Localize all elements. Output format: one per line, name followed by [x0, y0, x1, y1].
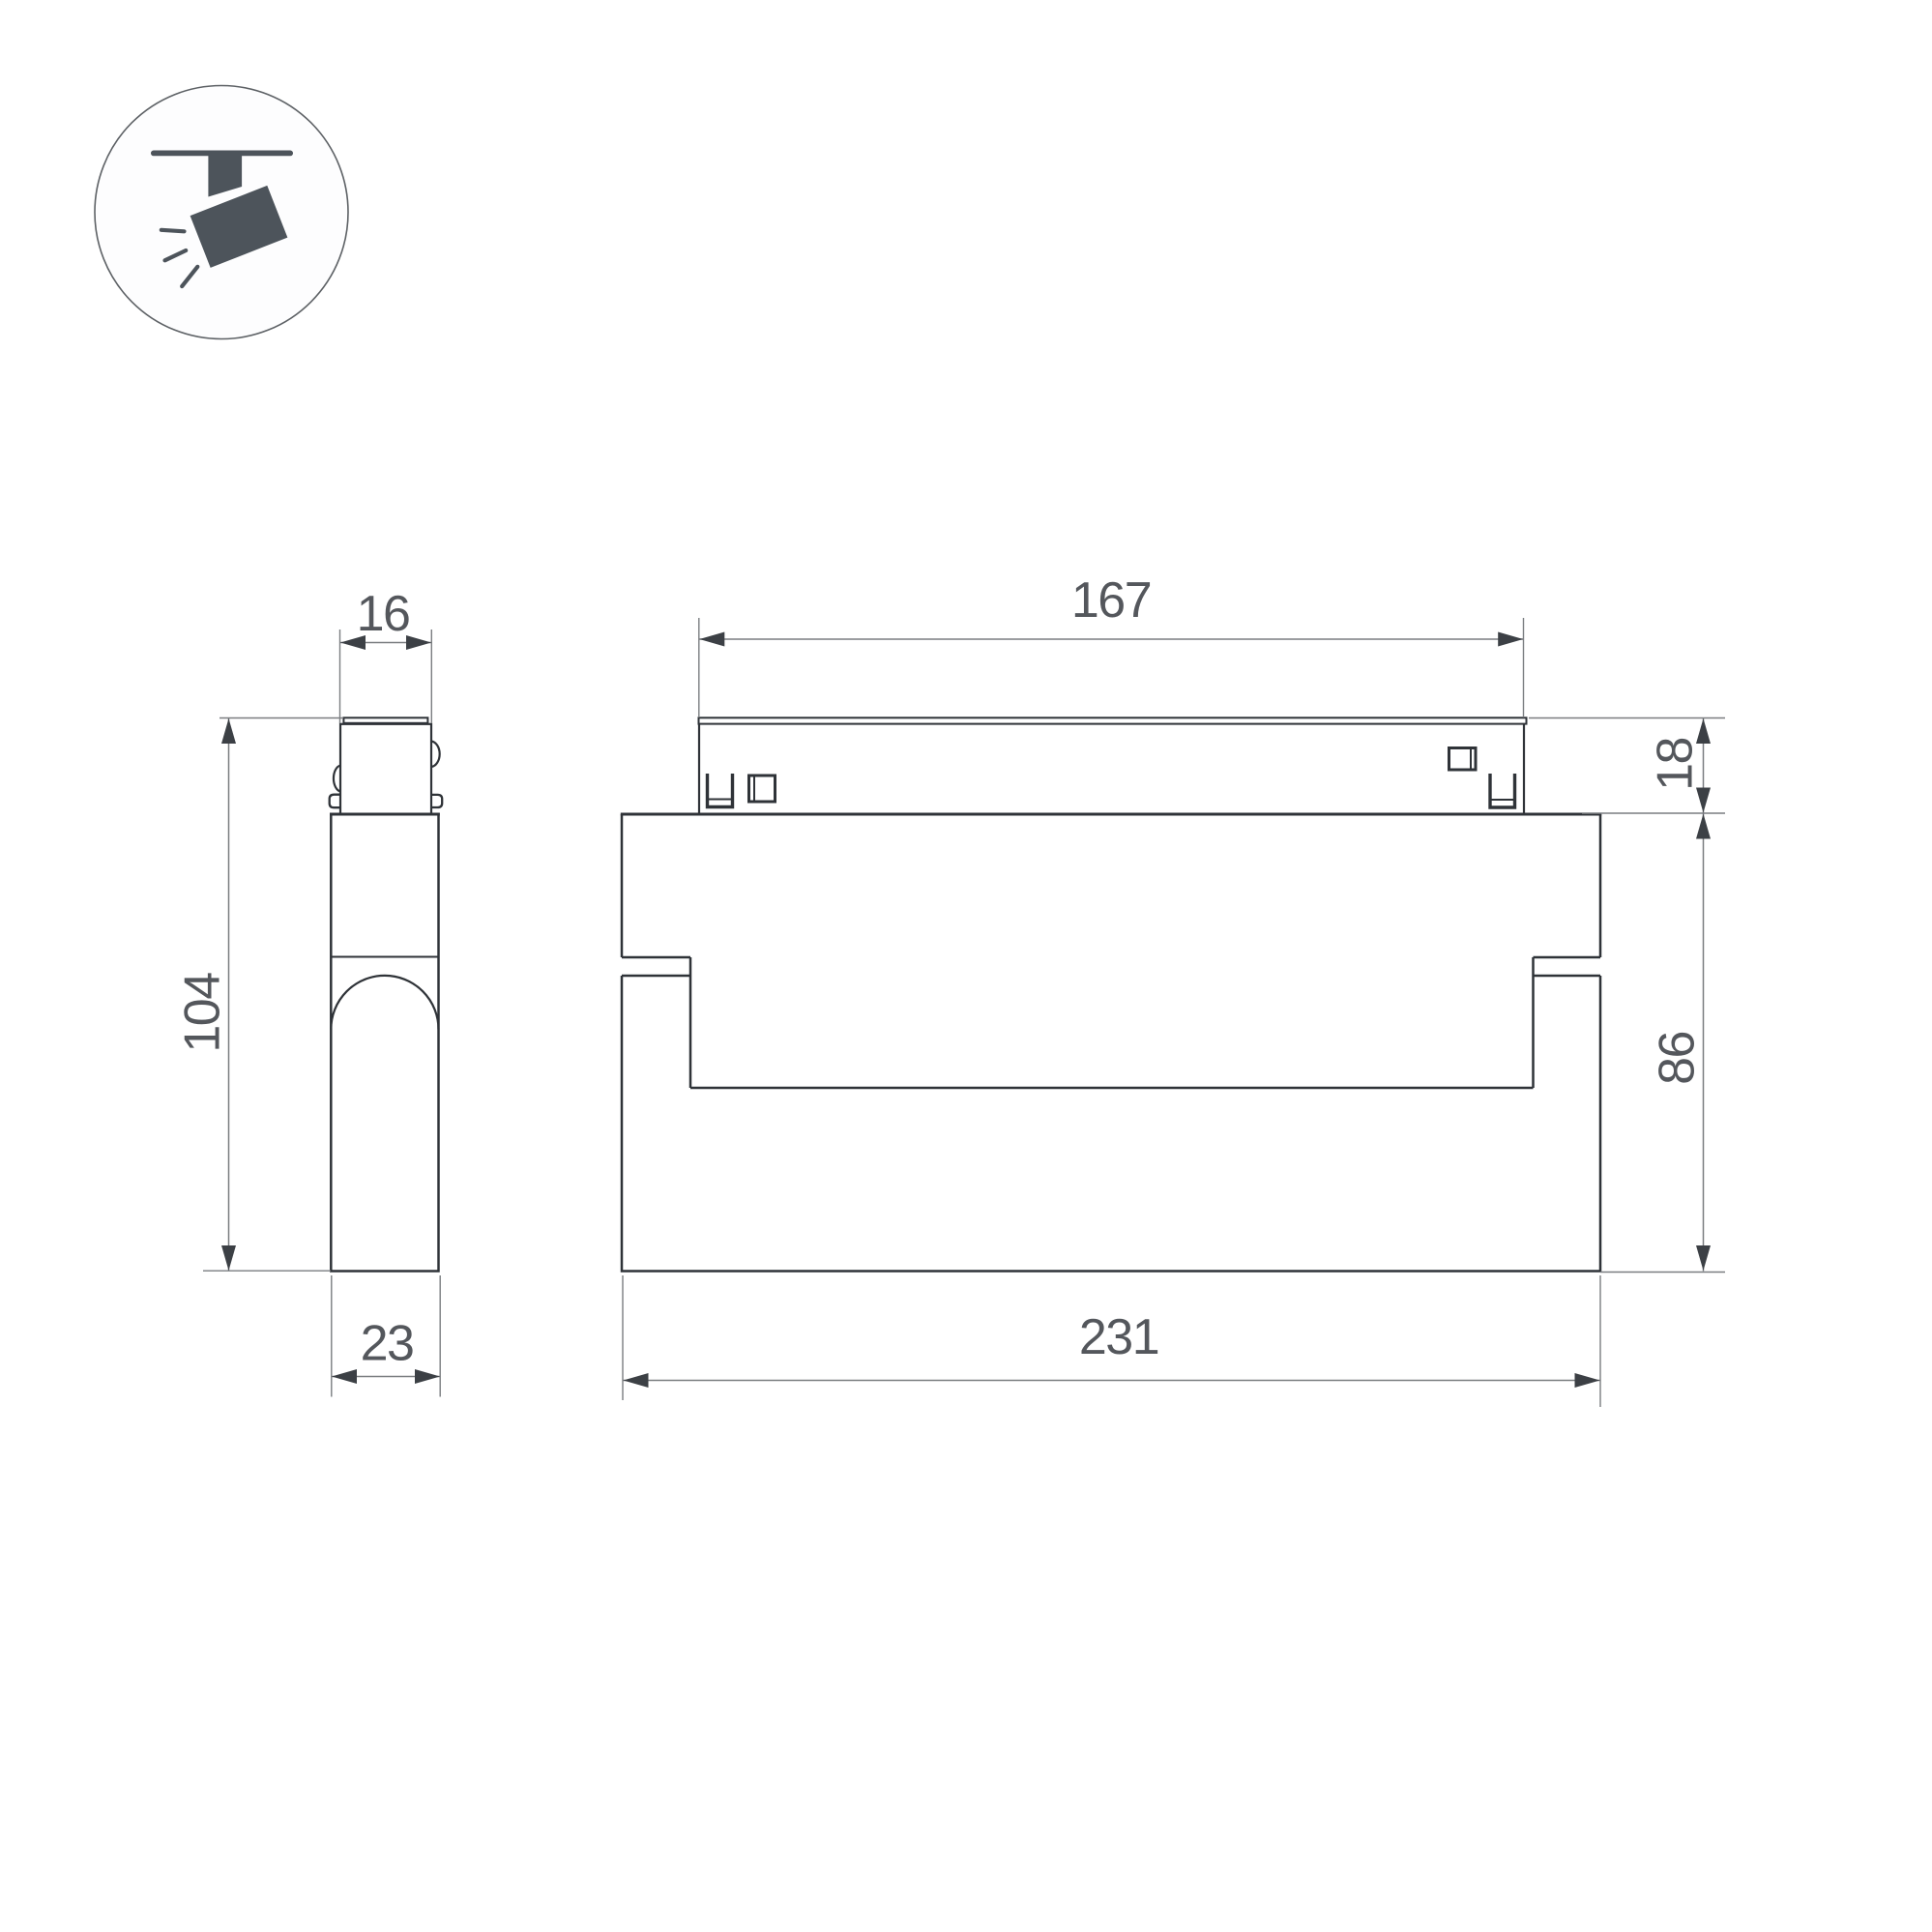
svg-text:23: 23 [361, 1316, 414, 1372]
svg-text:104: 104 [175, 973, 231, 1053]
svg-text:231: 231 [1079, 1309, 1158, 1365]
svg-text:18: 18 [1648, 738, 1704, 791]
svg-text:167: 167 [1071, 572, 1151, 629]
svg-text:16: 16 [357, 586, 410, 642]
svg-text:86: 86 [1650, 1032, 1706, 1085]
